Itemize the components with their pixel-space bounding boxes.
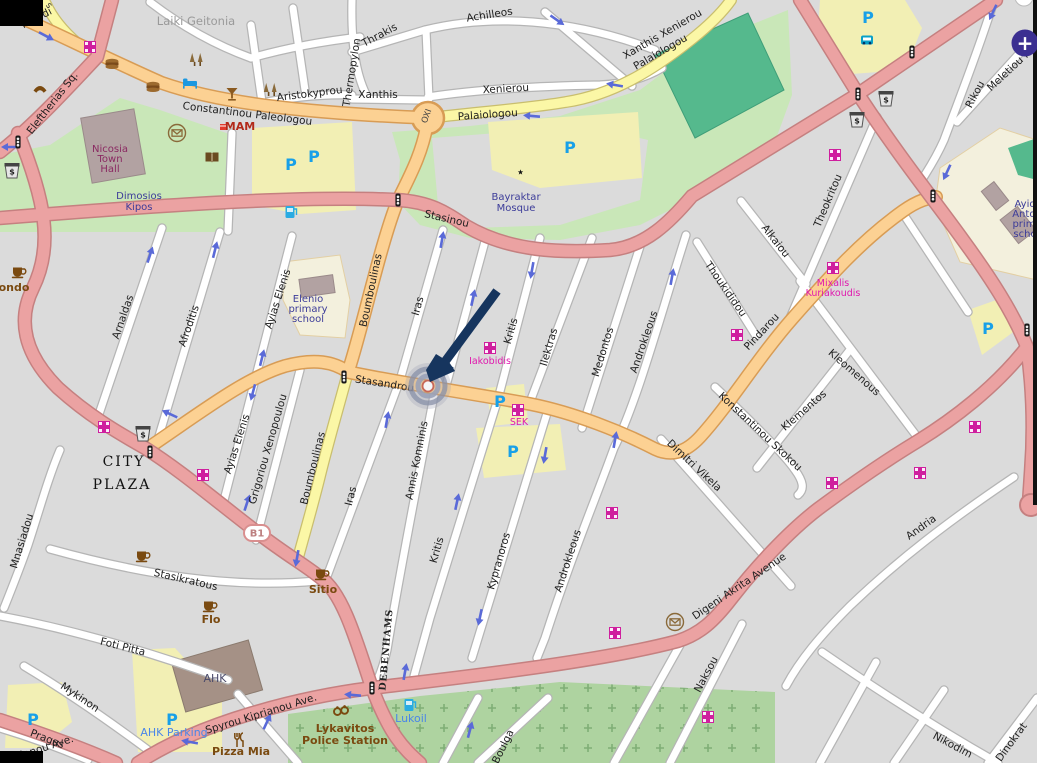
place-label-hall: Hall [100,164,119,175]
street-label-xanthis: Xanthis [358,89,397,101]
place-label-dimosios: Dimosios [116,191,162,202]
svg-text:$: $ [140,431,146,440]
pharmacy-icon [607,508,618,519]
pharmacy-icon [830,150,841,161]
parking-icon: P [982,319,994,338]
traffic-light-icon [1024,324,1029,337]
place-label-city: CITY [103,454,146,470]
parking-icon: P [166,710,178,729]
place-label-bayraktar: Bayraktar [491,192,541,203]
atm-icon: $ [5,163,20,178]
road-badge-b1: B1 [244,525,270,541]
place-label-iakobidis: Iakobidis [469,356,511,367]
pharmacy-icon [610,628,621,639]
place-label-police-station: Police Station [302,734,388,747]
svg-text:P: P [862,8,874,27]
right-edge-bar [1033,0,1037,505]
svg-text:P: P [285,155,297,174]
traffic-light-icon [341,371,346,384]
place-label-kipos: Kipos [125,202,152,213]
svg-text:P: P [564,138,576,157]
traffic-light-icon [909,46,914,59]
street-label-xenierou: Xenierou [482,82,529,96]
zoom-in-icon[interactable]: + [1017,31,1034,55]
svg-text:P: P [494,392,506,411]
parking-icon: P [308,147,320,166]
svg-text:$: $ [9,168,15,177]
place-label-plaza: PLAZA [93,477,152,493]
corner-mask-top-left [0,0,43,26]
pharmacy-icon [513,405,524,416]
road-badge-text: B1 [250,529,265,540]
place-label-school: school [292,314,324,325]
parking-icon: P [507,442,519,461]
shop-icon [220,124,226,130]
svg-text:P: P [507,442,519,461]
svg-text:P: P [27,710,39,729]
parking-icon: P [862,8,874,27]
traffic-light-icon [147,446,152,459]
pharmacy-icon [85,42,96,53]
svg-text:P: P [308,147,320,166]
svg-text:$: $ [883,96,889,105]
parking-icon: P [27,710,39,729]
fast-food-icon [106,59,119,69]
svg-text:$: $ [854,117,860,126]
atm-icon: $ [879,91,894,106]
atm-icon: $ [136,426,151,441]
pharmacy-icon [198,470,209,481]
place-label-mosque: Mosque [497,203,536,214]
pharmacy-icon [827,478,838,489]
road-st-park-edge [228,133,232,231]
corner-mask-bottom-left [0,751,43,763]
traffic-light-icon [930,190,935,203]
parking-icon: P [494,392,506,411]
traffic-light-icon [855,88,860,101]
place-label-kuriakoudis: Kuriakoudis [806,288,861,299]
atm-icon: $ [850,112,865,127]
parking-icon: P [564,138,576,157]
place-label-ahk: AHK [203,672,227,685]
pharmacy-icon [485,343,496,354]
place-label-pizza-mia: Pizza Mia [212,745,270,758]
bus-stop-icon [861,36,873,45]
pharmacy-icon [703,712,714,723]
place-label-ondo: ondo [0,281,30,294]
traffic-light-icon [395,194,400,207]
traffic-light-icon [15,136,20,149]
pharmacy-icon [970,422,981,433]
pharmacy-icon [732,330,743,341]
street-label-laiki-geitonia: Laiki Geitonia [157,14,235,28]
traffic-light-icon [369,682,374,695]
map-canvas[interactable]: ntelidisEleftherias Sq.Constantinou Pale… [0,0,1037,763]
parking-icon: P [285,155,297,174]
road-st-achilleos-top [426,30,429,99]
svg-text:P: P [166,710,178,729]
place-label-sitio: Sitio [309,583,338,596]
library-icon [206,153,219,163]
place-label-lukoil: Lukoil [395,712,427,725]
svg-text:P: P [982,319,994,338]
place-label-sek: SEK [510,417,529,428]
place-label-flo: Flo [202,613,221,626]
pharmacy-icon [828,263,839,274]
place-label-mam: MAM [225,120,255,133]
map-svg: ntelidisEleftherias Sq.Constantinou Pale… [0,0,1037,763]
pharmacy-icon [915,468,926,479]
fast-food-icon [147,82,160,92]
pharmacy-icon [99,422,110,433]
